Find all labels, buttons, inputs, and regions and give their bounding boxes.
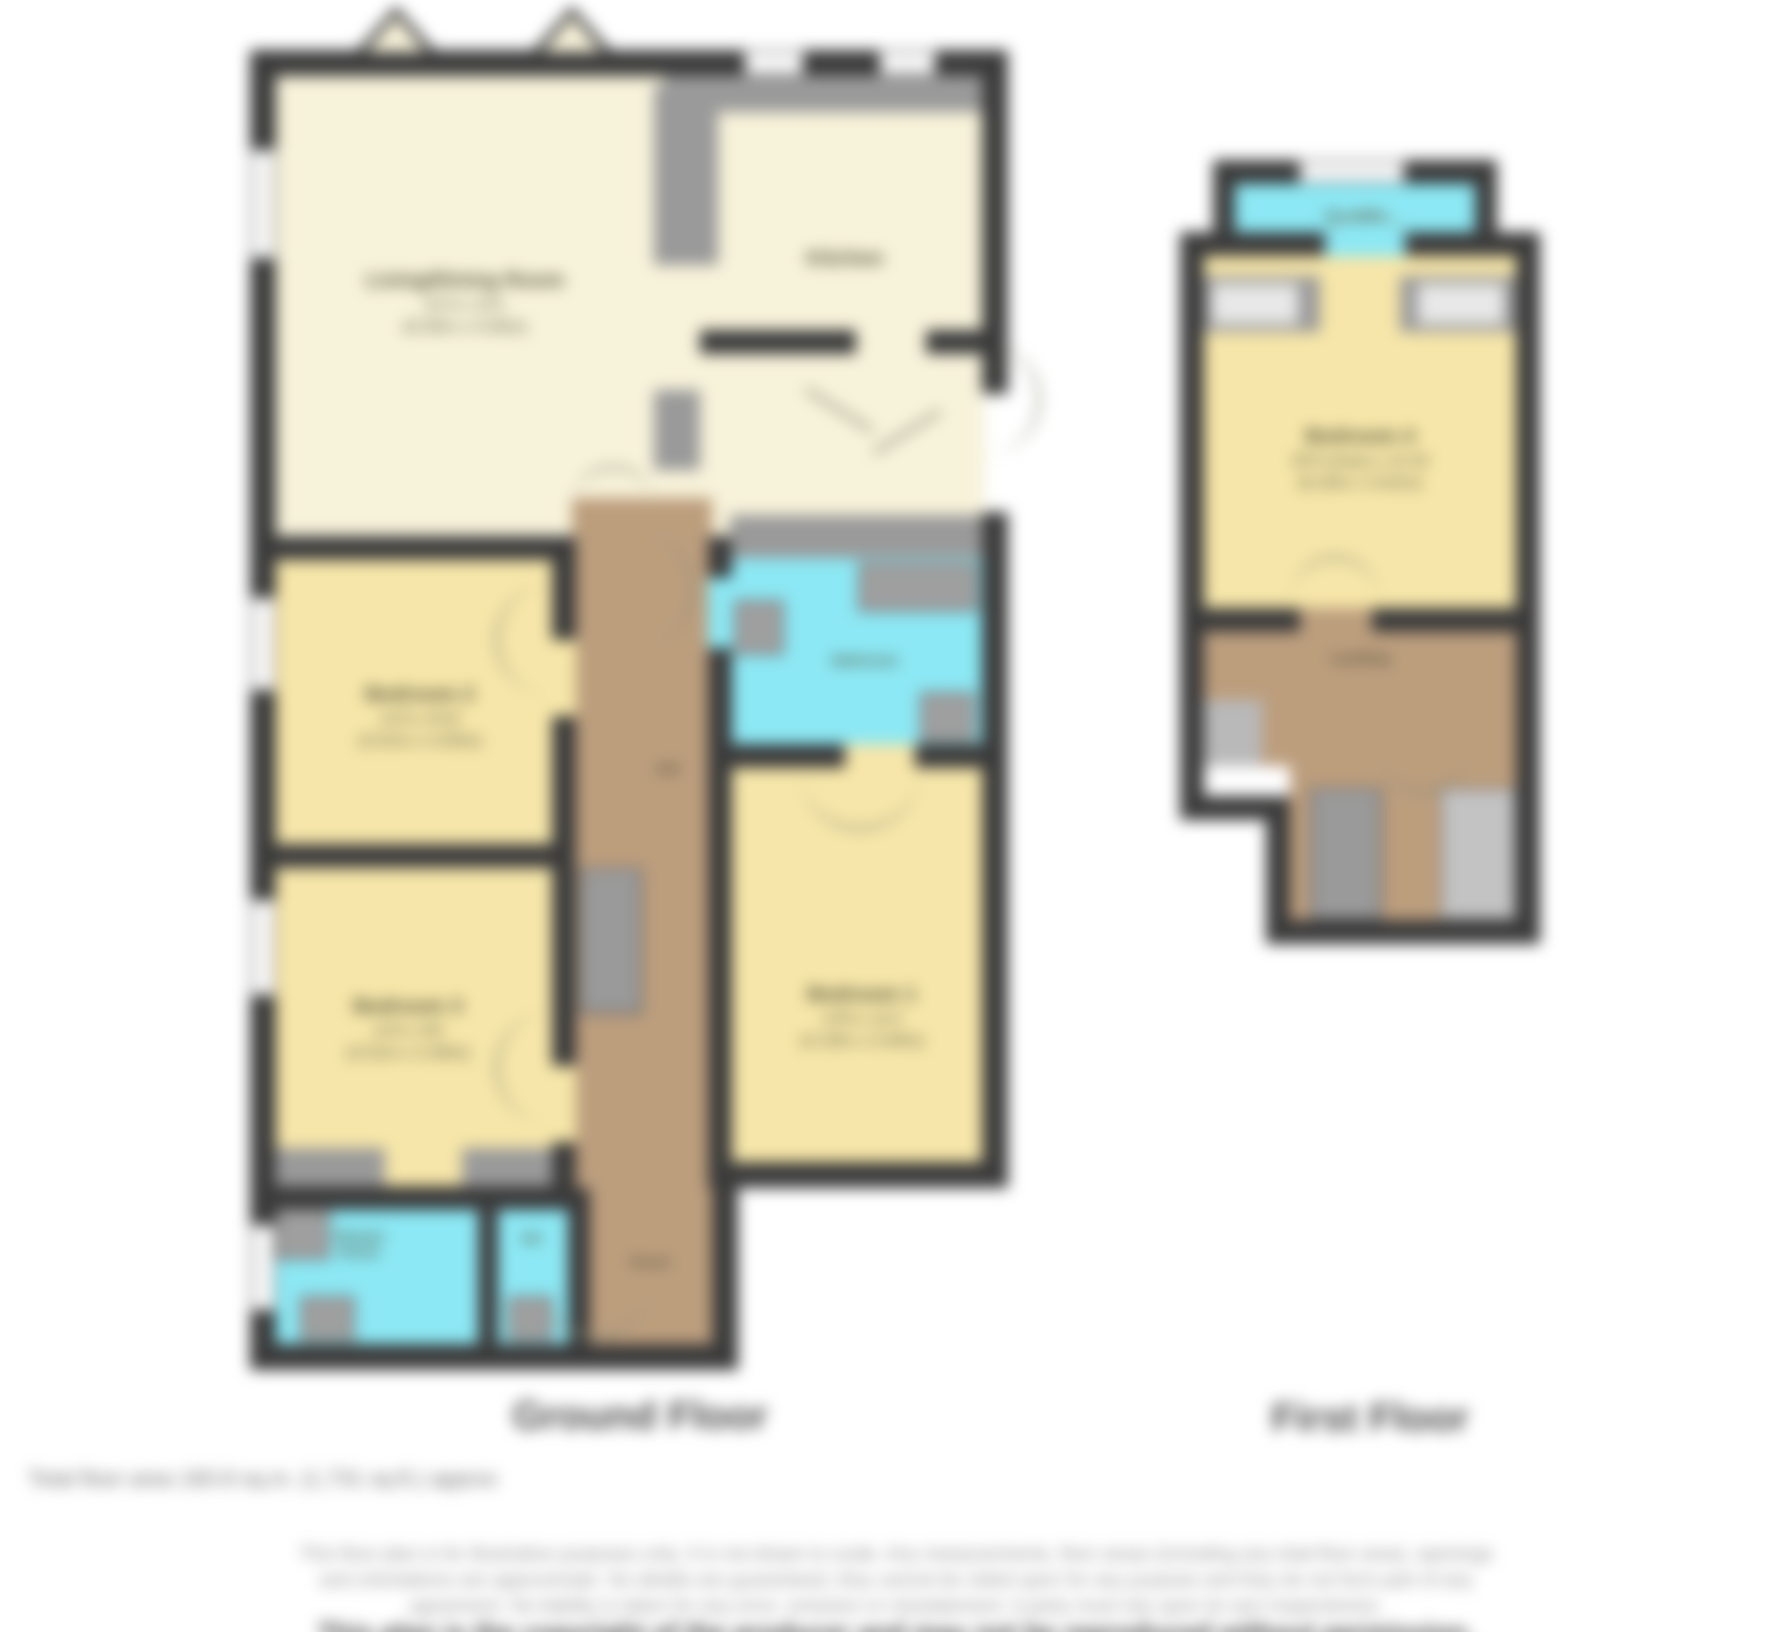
living-room-dims-metric: (6.50m x 4.00m) [330,316,600,337]
porch-name: Porch [630,1254,670,1270]
bay-window-right-glass [542,16,602,52]
bedroom4-dims-metric: (6.20m x 3.61m) [1230,472,1490,493]
gf-wall-shower-wc [478,1192,498,1352]
corridor-gray-block [654,390,700,470]
porch-label: Porch [600,1254,700,1270]
gf-wall-bottomrooms-top [250,1186,572,1210]
bedroom3-name: Bedroom 3 [273,994,543,1020]
bedroom2-name: Bedroom 2 [285,682,555,708]
gf-wall-living-bed2 [250,536,576,560]
bedroom2-dims-imperial: 11'6 x 9'10 [285,708,555,729]
bedroom3-door-gap [552,1066,576,1142]
wc-label: WC [505,1232,560,1247]
bath-fixture [858,562,978,612]
landing-name: Landing [1331,650,1389,667]
total-floor-area-text: Total floor area 160.8 sq.m. (1,731 sq.f… [28,1466,498,1492]
bedroom2-door-gap [552,640,576,716]
shower-room-toilet-fixture [300,1296,355,1341]
bathroom-label: Bathroom [790,652,940,668]
kitchen-window-2 [880,50,935,76]
bedroom3-label: Bedroom 3 11'6 x 9'6 (3.51m x 2.90m) [273,994,543,1063]
blurred-floorplan: Living/Dining Room 21'4 x 13'1 (6.50m x … [0,0,1792,1632]
bedroom1-label: Bedroom 1 13'9 x 11'2 (4.19m x 3.40m) [727,982,997,1051]
ff-wall-right [1516,232,1540,944]
hall-name: Hall [656,761,680,776]
bedroom1-dims-metric: (4.19m x 3.40m) [727,1030,997,1051]
kitchen-window [745,50,803,76]
side-entrance-arc [986,345,1041,455]
bedroom4-door-gap [1300,608,1372,632]
disclaimer-line-2: and orientations are approximate. No det… [0,1570,1792,1592]
bathroom-sink-fixture [734,600,784,655]
bedroom2-dims-metric: (3.51m x 3.00m) [285,730,555,751]
bathroom-name: Bathroom [832,652,898,668]
gf-wall-bed2-bed3 [250,844,576,868]
living-room-name: Living/Dining Room [330,268,600,294]
first-floor-title: First Floor [1240,1396,1500,1441]
bay-window-left-glass [366,16,426,52]
bedroom4-dims-imperial: 20'4 (max) x 11'10 [1230,450,1490,471]
gf-wall-kitchen-lobby [700,330,1008,354]
kitchen-name: Kitchen [760,246,930,272]
floorplan-page: Living/Dining Room 21'4 x 13'1 (6.50m x … [0,0,1792,1632]
gf-wall-right-lower [982,512,1008,1188]
staircase-ground [580,868,642,1014]
living-dining-room-label: Living/Dining Room 21'4 x 13'1 (6.50m x … [330,268,600,337]
bedroom1-name: Bedroom 1 [727,982,997,1008]
shower-room-name-line1: Shower [335,1228,386,1244]
ensuite-window [1300,160,1404,184]
bedroom3-dims-metric: (3.51m x 2.90m) [273,1042,543,1063]
ground-floor-title: Ground Floor [430,1394,850,1439]
landing-gray-block [1204,700,1262,766]
gf-wall-bed1-bottom [712,1162,1008,1188]
landing-label: Landing [1290,650,1430,667]
gf-wall-porch-right [712,1188,738,1370]
eaves-storage-bottom-right [1440,788,1516,920]
eaves-storage-right-inner [1418,284,1504,324]
staircase-first-floor [1310,788,1382,920]
bedroom1-door-gap [845,744,915,768]
shower-room-name-line2: Room [340,1244,380,1260]
bedroom1-dims-imperial: 13'9 x 11'2 [727,1008,997,1029]
ensuite-label: En-suite [1280,208,1430,225]
bathroom-toilet-fixture [920,692,975,742]
lobby-door-gap [856,330,926,354]
living-room-dims-imperial: 21'4 x 13'1 [330,294,600,315]
kitchen-label: Kitchen [760,246,930,272]
chimney-breast [654,85,718,265]
gf-wall-wc-porch [568,1188,590,1370]
disclaimer-line-4: This plan is the copyright of the produc… [0,1618,1792,1632]
bedroom4-name: Bedroom 4 [1230,424,1490,450]
ff-wall-bottom [1266,920,1540,944]
shower-room-label: Shower Room [300,1228,420,1260]
living-window [250,150,276,258]
bathroom-door-gap [708,578,732,648]
hall-label: Hall [630,762,706,777]
ensuite-name: En-suite [1325,208,1384,225]
disclaimer-line-3: agreement. No liability is taken for any… [0,1596,1792,1618]
bedroom3-window [250,900,276,995]
ff-wall-left [1180,232,1204,820]
disclaimer-line-1: This floor plan is for illustrative purp… [0,1544,1792,1566]
bedroom4-label: Bedroom 4 20'4 (max) x 11'10 (6.20m x 3.… [1230,424,1490,493]
bedroom2-label: Bedroom 2 11'6 x 9'10 (3.51m x 3.00m) [285,682,555,751]
wc-name: WC [522,1231,544,1246]
bedroom3-dims-imperial: 11'6 x 9'6 [273,1020,543,1041]
shower-room-window [250,1225,276,1310]
corridor-gray-strip [730,515,985,562]
eaves-storage-left-inner [1212,284,1298,324]
bedroom2-window [250,598,276,690]
